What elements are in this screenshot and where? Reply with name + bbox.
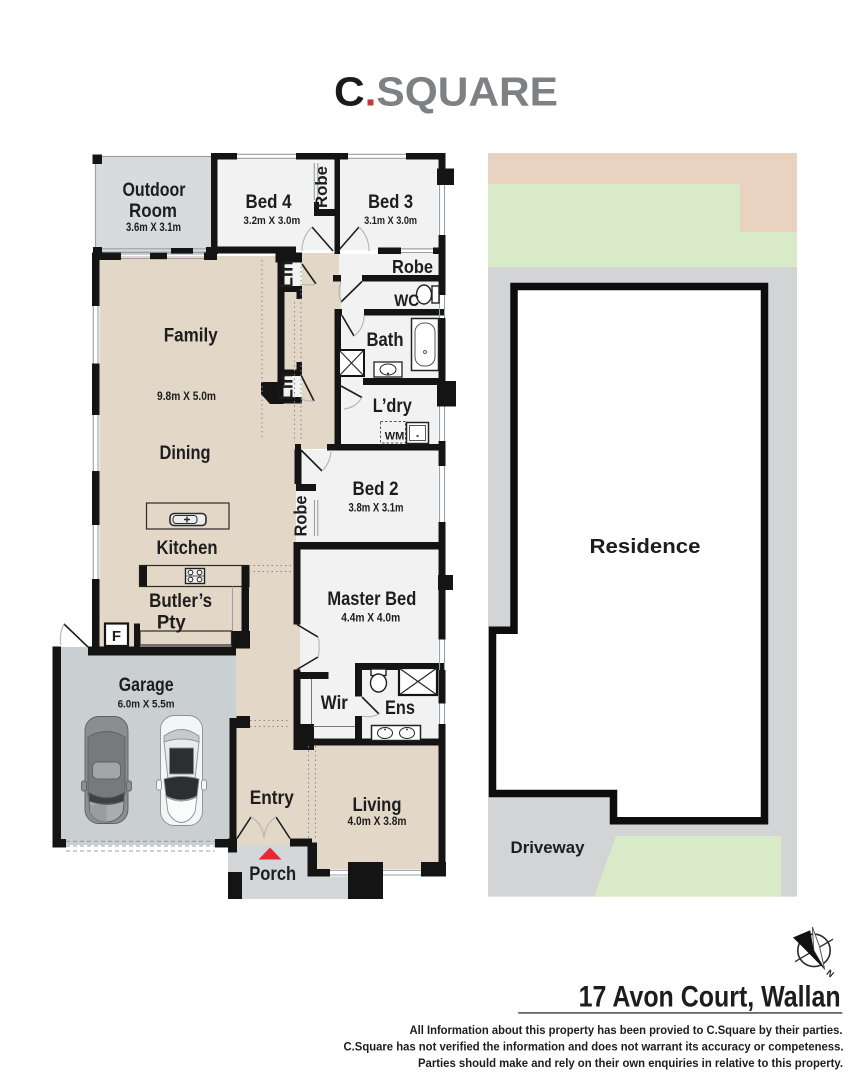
- svg-text:17 Avon Court, Wallan: 17 Avon Court, Wallan: [579, 981, 841, 1014]
- svg-text:Wir: Wir: [321, 692, 348, 713]
- svg-text:Pty: Pty: [157, 611, 186, 632]
- svg-text:All Information about this pro: All Information about this property has …: [410, 1023, 843, 1037]
- svg-text:Butler’s: Butler’s: [149, 590, 212, 611]
- svg-text:Master Bed: Master Bed: [327, 588, 416, 609]
- svg-text:Robe: Robe: [290, 496, 311, 537]
- svg-text:Outdoor: Outdoor: [123, 179, 186, 201]
- svg-text:3.2m X 3.0m: 3.2m X 3.0m: [243, 214, 300, 227]
- svg-text:Bed 4: Bed 4: [245, 191, 291, 212]
- svg-text:Living: Living: [353, 794, 402, 816]
- svg-text:Room: Room: [129, 200, 177, 221]
- svg-text:Robe: Robe: [312, 166, 331, 208]
- svg-text:3.1m X 3.0m: 3.1m X 3.0m: [364, 215, 417, 227]
- svg-text:Bath: Bath: [366, 329, 403, 350]
- svg-text:L’dry: L’dry: [373, 395, 412, 416]
- svg-text:F: F: [112, 628, 121, 645]
- svg-text:Entry: Entry: [250, 786, 295, 808]
- svg-text:Bed 3: Bed 3: [368, 191, 413, 212]
- svg-text:C.SQUARE: C.SQUARE: [334, 69, 558, 115]
- svg-text:C.Square has not verified the: C.Square has not verified the informatio…: [344, 1040, 844, 1054]
- svg-text:Driveway: Driveway: [511, 838, 585, 857]
- svg-text:Garage: Garage: [119, 673, 174, 695]
- svg-text:Residence: Residence: [590, 536, 701, 558]
- svg-text:6.0m X 5.5m: 6.0m X 5.5m: [118, 698, 175, 711]
- svg-text:9.8m X 5.0m: 9.8m X 5.0m: [157, 390, 216, 403]
- svg-text:4.0m X 3.8m: 4.0m X 3.8m: [348, 815, 407, 828]
- svg-text:Ens: Ens: [385, 697, 415, 718]
- svg-text:Porch: Porch: [249, 863, 296, 885]
- svg-text:Family: Family: [164, 323, 219, 345]
- svg-text:Lin: Lin: [275, 261, 298, 289]
- svg-text:WM: WM: [385, 431, 405, 443]
- svg-text:Dining: Dining: [160, 442, 211, 464]
- svg-text:Lin: Lin: [275, 373, 298, 401]
- svg-text:Kitchen: Kitchen: [157, 537, 218, 559]
- svg-text:Parties should make and rely o: Parties should make and rely on their ow…: [418, 1056, 843, 1070]
- svg-text:Robe: Robe: [392, 256, 433, 277]
- svg-text:4.4m X 4.0m: 4.4m X 4.0m: [341, 612, 400, 625]
- svg-text:WC: WC: [394, 291, 419, 310]
- svg-text:Bed 2: Bed 2: [352, 478, 398, 499]
- svg-text:3.6m X 3.1m: 3.6m X 3.1m: [126, 221, 181, 234]
- svg-text:3.8m X 3.1m: 3.8m X 3.1m: [349, 502, 404, 515]
